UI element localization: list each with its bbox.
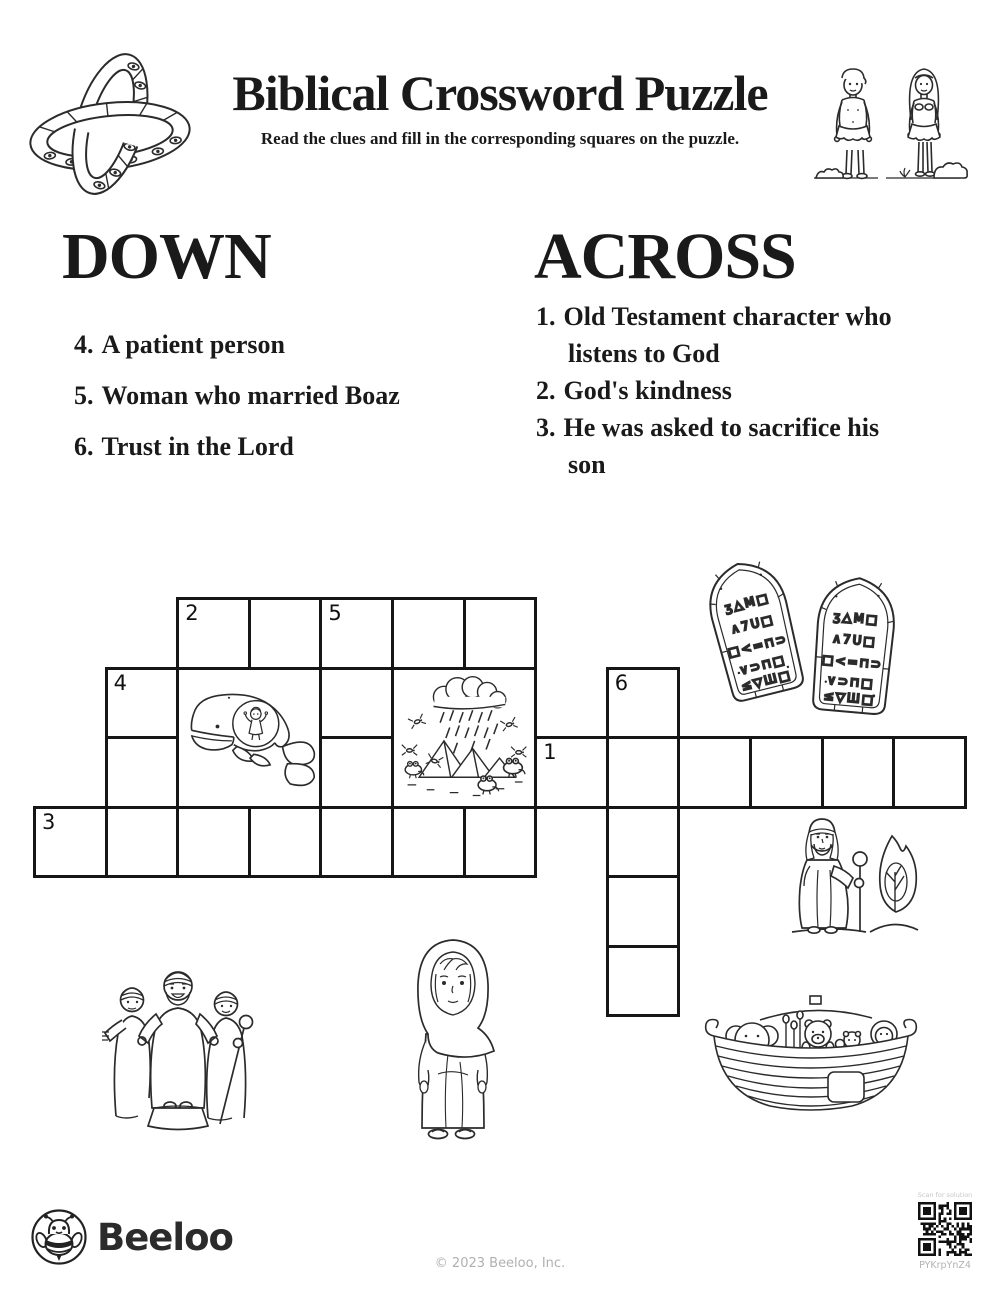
grid-cell[interactable] — [391, 806, 466, 879]
down-clue-6: 6.Trust in the Lord — [74, 432, 400, 462]
adam-and-eve-icon — [806, 60, 968, 186]
grid-cell[interactable] — [319, 667, 394, 740]
grid-cell[interactable] — [391, 597, 466, 670]
grid-cell-number: 5 — [328, 600, 341, 627]
qr-code — [918, 1202, 972, 1256]
ruth-woman-icon — [398, 930, 508, 1152]
down-clue-4: 4.A patient person — [74, 330, 400, 360]
grid-cell-number: 2 — [185, 600, 198, 627]
qr-code-id: PYKrpYnZ4 — [912, 1260, 978, 1271]
page-subtitle: Read the clues and fill in the correspon… — [168, 129, 832, 149]
brand-wordmark: Beeloo — [97, 1219, 233, 1256]
noahs-ark-icon — [700, 988, 922, 1122]
grid-cell[interactable]: 6 — [606, 667, 681, 740]
down-clue-5: 5.Woman who married Boaz — [74, 381, 400, 411]
across-clues: 1.Old Testament character who listens to… — [536, 298, 908, 483]
grid-cell-number: 6 — [615, 670, 628, 697]
grid-cell[interactable] — [749, 736, 824, 809]
grid-cell[interactable] — [677, 736, 752, 809]
across-clue-3: 3.He was asked to sacrifice his son — [536, 409, 908, 483]
down-heading: DOWN — [62, 224, 271, 290]
grid-cell[interactable] — [821, 736, 896, 809]
grid-cell[interactable]: 2 — [176, 597, 251, 670]
clue-number: 3. — [536, 413, 556, 442]
across-clue-1: 1.Old Testament character who listens to… — [536, 298, 908, 372]
grid-cell[interactable] — [105, 806, 180, 879]
grid-cell-number: 4 — [114, 670, 127, 697]
grid-cell[interactable] — [105, 736, 180, 809]
down-clues: 4.A patient person 5.Woman who married B… — [74, 330, 400, 483]
across-heading: ACROSS — [534, 224, 796, 290]
clue-text: Trust in the Lord — [102, 432, 294, 461]
grid-cell[interactable] — [606, 806, 681, 879]
copyright-text: © 2023 Beeloo, Inc. — [390, 1256, 610, 1271]
moses-burning-bush-icon — [774, 808, 926, 946]
grid-cell[interactable] — [606, 736, 681, 809]
grid-cell[interactable] — [892, 736, 967, 809]
clue-number: 4. — [74, 330, 94, 359]
beeloo-bee-logo-icon — [30, 1208, 88, 1266]
grid-cell[interactable] — [606, 945, 681, 1018]
across-clue-2: 2.God's kindness — [536, 372, 908, 409]
clue-number: 5. — [74, 381, 94, 410]
grid-cell[interactable] — [319, 806, 394, 879]
grid-cell[interactable]: 1 — [534, 736, 609, 809]
clue-number: 2. — [536, 376, 556, 405]
grid-cell[interactable]: 3 — [33, 806, 108, 879]
grid-cell[interactable] — [176, 806, 251, 879]
clue-number: 6. — [74, 432, 94, 461]
qr-caption: Scan for solution — [912, 1191, 978, 1199]
grid-cell[interactable] — [463, 597, 538, 670]
jonah-whale-illustration — [176, 667, 322, 809]
grid-cell[interactable] — [248, 597, 323, 670]
header: Biblical Crossword Puzzle Read the clues… — [168, 66, 832, 149]
grid-cell[interactable] — [606, 875, 681, 948]
ten-commandments-icon: ʒ△M□ ∧7U□ □<=⊓⊃ ∨⊃⊓□ ≤▽Ш□ ʒ△M□ ∧7U□ □<=⊓… — [706, 542, 912, 728]
grid-cell[interactable] — [319, 736, 394, 809]
clue-text: A patient person — [102, 330, 285, 359]
page-title: Biblical Crossword Puzzle — [168, 66, 832, 121]
clue-text: Old Testament character who listens to G… — [564, 302, 892, 368]
clue-text: Woman who married Boaz — [102, 381, 400, 410]
joseph-and-brothers-icon — [92, 948, 264, 1132]
clue-text: He was asked to sacrifice his son — [564, 413, 880, 479]
plagues-of-egypt-illustration — [391, 667, 537, 809]
grid-cell[interactable]: 4 — [105, 667, 180, 740]
grid-cell[interactable]: 5 — [319, 597, 394, 670]
worksheet-page: Biblical Crossword Puzzle Read the clues… — [0, 0, 1000, 1294]
clue-number: 1. — [536, 302, 556, 331]
grid-cell-number: 1 — [543, 739, 556, 766]
grid-cell-number: 3 — [42, 809, 55, 836]
grid-cell[interactable] — [463, 806, 538, 879]
grid-cell[interactable] — [248, 806, 323, 879]
clue-text: God's kindness — [564, 376, 732, 405]
